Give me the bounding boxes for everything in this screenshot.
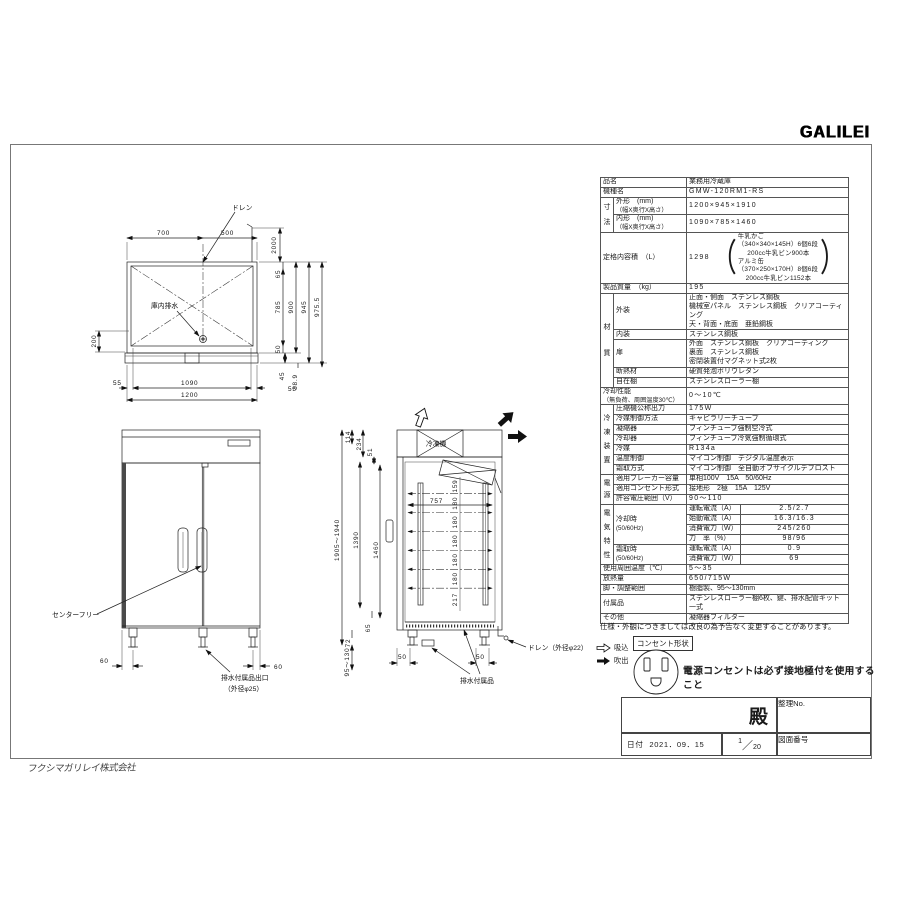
row-value: ステンレスローラー棚 [687,377,849,387]
row-value: 業務用冷蔵庫 [687,178,849,188]
blowout-arrow-icon [495,407,518,429]
outlet-diagram [630,648,682,698]
table-row: 霜取時(50/60Hz) 運転電流（A）0.9 [601,545,849,555]
svg-text:排水付属品出口: 排水付属品出口 [221,673,269,682]
svg-text:2000: 2000 [271,236,278,253]
svg-text:1090: 1090 [181,380,198,387]
row-label: 製品質量 （kg） [601,284,687,294]
suction-label: 吸込 [614,643,628,653]
spec-table: 品名業務用冷蔵庫 機種名GMW-120RM1-RS 寸 法 外形 (mm)（幅X… [600,177,849,624]
row-value: 195 [687,284,849,294]
svg-text:217: 217 [452,593,459,606]
table-row: 放熱量650/715W [601,575,849,585]
row-label: 冷媒 [614,445,687,455]
row-label: 外装 [614,294,687,330]
row-value: ステンレスローラー棚6枚、鍵、排水配管キット一式 [687,595,849,614]
disclaimer-note: 仕様・外観につきましては改良の為予告なく変更することがあります。 [600,621,835,632]
front-cabinet [122,430,260,647]
row-value: 0～10℃ [687,387,849,404]
drain-pipe [498,626,508,640]
capacity-cell: 1298（ 牛乳かご（340×340×145H）6個6段200cc牛乳ビン900… [687,232,849,283]
row-value: 樹脂製、95～130mm [687,585,849,595]
row-label: 圧縮機公称出力 [614,405,687,415]
svg-text:38.9: 38.9 [292,374,299,390]
side-door-handle [386,520,393,542]
ground-warning-text: 電源コンセントは必ず接地極付を使用すること [683,663,878,691]
plan-view-drawing: 700 500 2000 65 785 50 900 945 975.5 200… [85,190,365,420]
row-value: R134a [687,445,849,455]
row-value: フィンチューブ冷気強制循環式 [687,435,849,445]
row-value: 0.9 [741,545,849,555]
company-watermark: フクシマガリレイ株式会社 [27,760,138,775]
table-row: 許容電圧範囲（V）90～110 [601,495,849,505]
section-dimensions: 寸 法 [601,198,614,233]
svg-text:51: 51 [367,448,374,457]
svg-text:1390: 1390 [353,531,360,548]
row-label: 品名 [601,178,687,188]
row-label: 扉 [614,340,687,367]
plan-dimensions: 700 500 2000 65 785 50 900 945 975.5 200… [91,228,327,402]
side-legs [407,630,490,645]
table-row: 電 源 適用ブレーカー容量単相100V 15A 50/60Hz [601,475,849,485]
svg-text:114: 114 [345,431,352,444]
title-block: 殿 整理No. 日付 2021．09．15 1／20 図面番号 [621,697,871,756]
date-value: 2021．09．15 [649,739,704,750]
legs [128,628,258,647]
table-row: 内形 (mm)（幅X奥行X高さ） 1090×785×1460 [601,215,849,232]
svg-text:60: 60 [100,658,109,665]
table-row: 断熱材硬質発泡ポリウレタン [601,367,849,377]
row-value: 16.3/16.3 [741,515,849,525]
svg-text:50: 50 [476,654,485,661]
svg-text:1460: 1460 [373,541,380,558]
svg-text:700: 700 [157,230,170,237]
date-label: 日付 [627,739,643,750]
svg-text:180: 180 [452,497,459,510]
defrost-mode-label: 霜取時(50/60Hz) [614,545,687,565]
row-label: 運転電流（A） [687,545,741,555]
table-row: 品名業務用冷蔵庫 [601,178,849,188]
row-value: 650/715W [687,575,849,585]
table-row: 寸 法 外形 (mm)（幅X奥行X高さ） 1200×945×1910 [601,198,849,215]
row-label: 霜取方式 [614,465,687,475]
drawing-number-cell: 図面番号 [777,733,871,756]
row-value: 69 [741,555,849,565]
suction-arrow-icon [412,406,431,428]
table-row: 製品質量 （kg）195 [601,284,849,294]
row-value: 正面・側面 ステンレス鋼板機械室パネル ステンレス鋼板 クリアコーティング天・背… [687,294,849,330]
table-row: 霜取方式マイコン制御 全自動オフサイクルデフロスト [601,465,849,475]
row-value: 90～110 [687,495,849,505]
shelf-pitch-chain: 159 180 180 180 180 180 217 [452,477,460,611]
row-value: 接地形 2極 15A 125V [687,485,849,495]
row-value: 98/96 [741,535,849,545]
svg-text:180: 180 [452,572,459,585]
svg-text:65: 65 [275,270,282,279]
svg-text:55: 55 [113,380,122,387]
table-row: 脚・調整範囲樹脂製、95～130mm [601,585,849,595]
door-latch [202,463,208,467]
table-row: 冷 凍 装 置 圧縮機公称出力175W [601,405,849,415]
drain-fitting [422,640,434,646]
row-value: 外面 ステンレス鋼板 クリアコーティング裏面 ステンレス鋼板密閉装置付マグネット… [687,340,849,367]
row-label: 適用コンセント形式 [614,485,687,495]
blowout-label: 吹出 [614,656,628,666]
table-row: 自在棚ステンレスローラー棚 [601,377,849,387]
section-power: 電 源 [601,475,614,505]
table-row: 内装ステンレス鋼板 [601,330,849,340]
side-view-drawing: 冷凍機 [330,400,615,740]
svg-text:180: 180 [452,553,459,566]
table-row: 凝縮器フィンチューブ強制空冷式 [601,425,849,435]
table-row: 冷却器フィンチューブ冷気強制循環式 [601,435,849,445]
row-label: 消費電力（W） [687,525,741,535]
floor-drain-symbol [199,335,207,343]
svg-text:50: 50 [398,654,407,661]
row-value: 175W [687,405,849,415]
svg-text:200: 200 [91,334,98,347]
svg-text:ドレン（外径φ22）: ドレン（外径φ22） [528,643,588,652]
row-value: キャピラリーチューブ [687,415,849,425]
control-number-cell: 整理No. [777,697,871,733]
svg-text:1200: 1200 [181,392,198,399]
cooling-mode-label: 冷却時(50/60Hz) [614,505,687,545]
svg-text:排水付属品: 排水付属品 [460,676,494,685]
blowout-arrow2-icon [508,430,527,443]
table-row: 冷媒制御方法キャピラリーチューブ [601,415,849,425]
row-value: 硬質発泡ポリウレタン [687,367,849,377]
svg-text:1905～1940: 1905～1940 [334,519,341,561]
table-row: 機種名GMW-120RM1-RS [601,188,849,198]
row-label: 許容電圧範囲（V） [614,495,687,505]
table-row: 冷媒R134a [601,445,849,455]
row-value: マイコン制御 全自動オフサイクルデフロスト [687,465,849,475]
row-label: 適用ブレーカー容量 [614,475,687,485]
row-label: 始動電流（A） [687,515,741,525]
row-label: 機種名 [601,188,687,198]
side-dimensions: 1905～1940 114 234 51 1390 1460 65 72 95～… [334,430,497,676]
section-material: 材 質 [601,294,614,388]
blowout-arrow-icon [596,656,611,666]
suction-arrow-icon [596,643,611,653]
row-value: 1200×945×1910 [687,198,849,215]
row-label: 放熱量 [601,575,687,585]
svg-text:45: 45 [279,372,286,381]
svg-text:95～130: 95～130 [344,648,351,677]
table-row: 電 気 特 性 冷却時(50/60Hz) 運転電流（A）2.5/2.7 [601,505,849,515]
table-row: 材 質 外装 正面・側面 ステンレス鋼板機械室パネル ステンレス鋼板 クリアコー… [601,294,849,330]
svg-text:庫内排水: 庫内排水 [151,301,178,310]
side-cabinet: 冷凍機 [386,430,508,646]
front-dimensions: 60 60 [100,630,283,671]
row-label: 断熱材 [614,367,687,377]
table-row: 使用周囲温度（℃）5～35 [601,565,849,575]
svg-text:757: 757 [430,498,443,505]
svg-text:冷凍機: 冷凍機 [426,439,447,448]
table-row: 付属品ステンレスローラー棚6枚、鍵、排水配管キット一式 [601,595,849,614]
airflow-legend: 吸込 吹出 [596,641,628,667]
plan-labels: ドレン 庫内排水 [151,205,253,336]
dono-label: 殿 [749,702,768,729]
svg-text:785: 785 [275,300,282,313]
row-label: 力 率（%） [687,535,741,545]
row-value: 単相100V 15A 50/60Hz [687,475,849,485]
row-label: 内形 (mm)（幅X奥行X高さ） [614,215,687,232]
section-refrigeration: 冷 凍 装 置 [601,405,614,475]
section-electrical: 電 気 特 性 [601,505,614,565]
row-label: 運転電流（A） [687,505,741,515]
row-label: 冷媒制御方法 [614,415,687,425]
front-view-drawing: 60 60 センターフリー 排水付属品出口 （外径φ25） [50,420,340,730]
row-label: 外形 (mm)（幅X奥行X高さ） [614,198,687,215]
row-value: ステンレス鋼板 [687,330,849,340]
row-label: 温度制御 [614,455,687,465]
row-label: 消費電力（W） [687,555,741,565]
row-label: 冷却器 [614,435,687,445]
row-label: 脚・調整範囲 [601,585,687,595]
svg-text:72: 72 [345,639,352,648]
control-panel [228,440,250,446]
svg-text:945: 945 [301,300,308,313]
side-labels: ドレン（外径φ22） 排水付属品 [432,630,588,685]
front-labels: センターフリー 排水付属品出口 （外径φ25） [52,566,269,693]
row-value: 5～35 [687,565,849,575]
row-value: 245/260 [741,525,849,535]
galilei-logo: GALILEI [770,123,870,142]
svg-text:975.5: 975.5 [314,297,321,317]
date-cell: 日付 2021．09．15 [621,733,722,756]
svg-text:180: 180 [452,534,459,547]
table-row: 定格内容積 （L） 1298（ 牛乳かご（340×340×145H）6個6段20… [601,232,849,283]
row-value: 2.5/2.7 [741,505,849,515]
row-label: 凝縮器 [614,425,687,435]
table-row: 適用コンセント形式接地形 2極 15A 125V [601,485,849,495]
table-row: 扉 外面 ステンレス鋼板 クリアコーティング裏面 ステンレス鋼板密閉装置付マグネ… [601,340,849,367]
table-row: 温度制御マイコン制御 デジタル温度表示 [601,455,849,465]
svg-text:センターフリー: センターフリー [52,610,99,619]
svg-text:50: 50 [275,345,282,354]
svg-text:159: 159 [452,479,459,492]
svg-text:（外径φ25）: （外径φ25） [224,684,263,693]
row-value: マイコン制御 デジタル温度表示 [687,455,849,465]
row-label: 冷却性能（無負荷、周囲温度30℃） [601,387,687,404]
row-label: 自在棚 [614,377,687,387]
evaporator [439,460,501,493]
row-label: 使用周囲温度（℃） [601,565,687,575]
svg-text:60: 60 [274,664,283,671]
svg-text:180: 180 [452,515,459,528]
model-number: GMW-120RM1-RS [687,188,849,198]
row-label: 付属品 [601,595,687,614]
row-label: 定格内容積 （L） [601,232,687,283]
svg-text:65: 65 [365,624,372,633]
row-value: 1090×785×1460 [687,215,849,232]
row-value: フィンチューブ強制空冷式 [687,425,849,435]
plan-cabinet [125,224,258,363]
addressee-cell: 殿 [621,697,777,733]
scale-cell: 1／20 [722,733,777,756]
table-row: 冷却性能（無負荷、周囲温度30℃） 0～10℃ [601,387,849,404]
svg-text:900: 900 [288,300,295,313]
svg-text:234: 234 [356,437,363,450]
row-label: 内装 [614,330,687,340]
svg-text:ドレン: ドレン [232,205,253,212]
